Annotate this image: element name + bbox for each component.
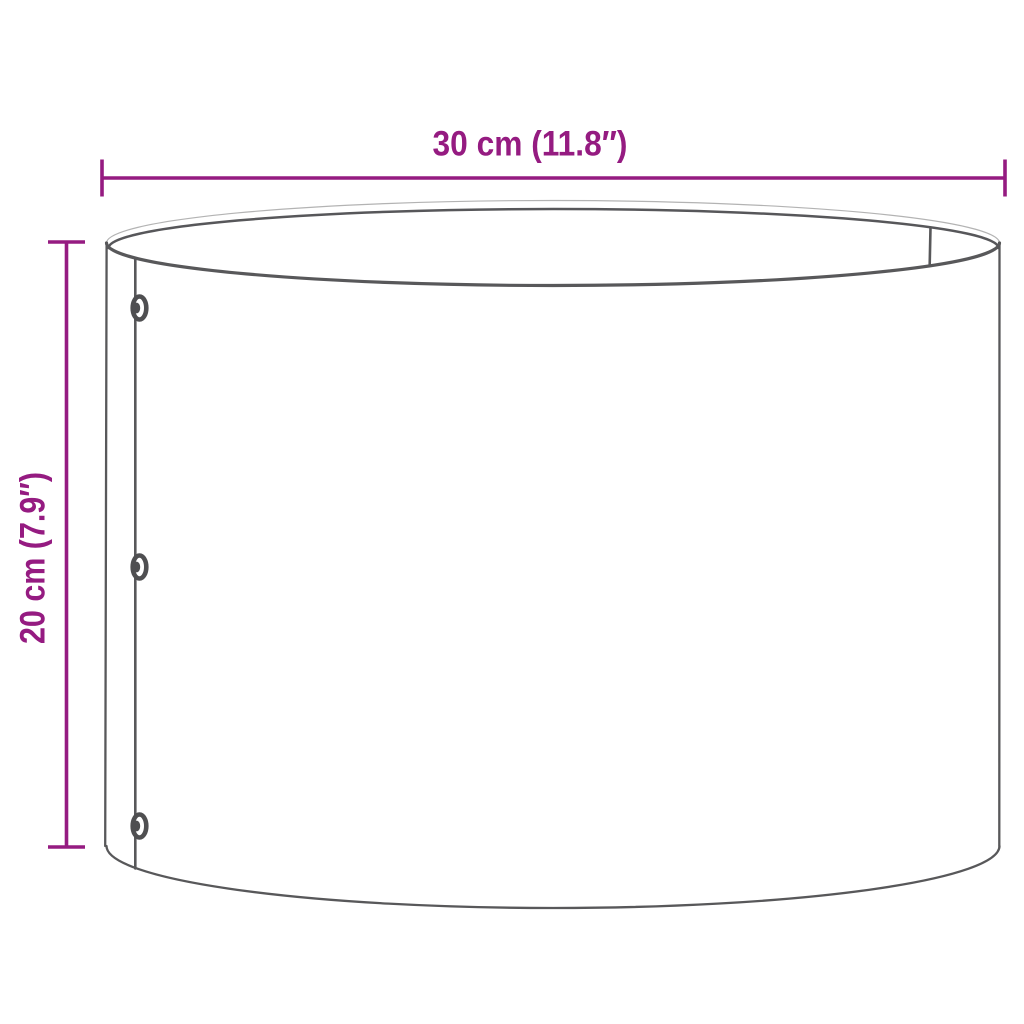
svg-text:20 cm (7.9″): 20 cm (7.9″) [14,472,53,644]
svg-text:30 cm (11.8″): 30 cm (11.8″) [433,125,628,164]
